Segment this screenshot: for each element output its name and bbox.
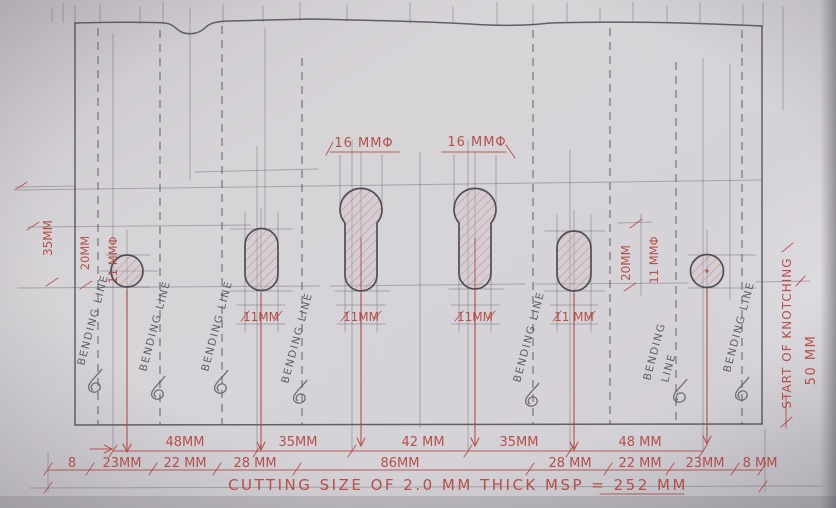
- plate-bottom-edge: [75, 424, 762, 425]
- dim-22mm-left: 22 MM: [163, 456, 206, 471]
- keyhole-left-dia-label: 16 MMΦ: [334, 136, 393, 151]
- center-mark: [705, 269, 708, 272]
- dim-8-left: 8: [68, 456, 76, 471]
- cutting-size-note: CUTTING SIZE OF 2.0 MM THICK MSP = 252 M…: [228, 476, 688, 494]
- slot-right-width-label: 11 MM: [554, 310, 594, 324]
- slot-hole-left: [245, 229, 278, 291]
- dim-35mm-left: 35MM: [279, 435, 318, 450]
- dim-35mm-right: 35MM: [500, 435, 539, 450]
- drawing-canvas: BENDING LINE BENDING LINE BENDING LINE B…: [0, 0, 836, 508]
- dim-28mm-left: 28 MM: [233, 456, 276, 471]
- dim-22mm-right: 22 MM: [618, 456, 661, 471]
- dim-8mm-right: 8 MM: [743, 456, 778, 471]
- dim-48mm-left: 48MM: [166, 435, 205, 450]
- slot-hole-right: [557, 231, 591, 291]
- photo-of-drawing: BENDING LINE BENDING LINE BENDING LINE B…: [0, 0, 836, 508]
- start-of-knotching-label: START OF KNOTCHING: [780, 257, 794, 408]
- right-dim-20mm: 20MM: [619, 245, 633, 281]
- right-dim-11mmdia: 11 MMΦ: [647, 236, 661, 283]
- dim-28mm-right: 28 MM: [548, 456, 591, 471]
- slot-left-width-label: 11MM: [243, 310, 279, 324]
- dim-23mm-right: 23MM: [686, 456, 725, 471]
- keyhole-right-width-label: 11MM: [457, 310, 493, 324]
- dim-86mm: 86MM: [381, 456, 420, 471]
- photo-shading: [0, 0, 836, 508]
- keyhole-right-dia-label: 16 MMΦ: [447, 135, 506, 150]
- dim-48mm-right: 48 MM: [618, 435, 661, 450]
- left-dim-35mm: 35MM: [41, 220, 55, 256]
- dim-23mm-left: 23MM: [103, 456, 142, 471]
- knotch-50mm-label: 50 MM: [804, 335, 819, 386]
- dim-42mm: 42 MM: [401, 435, 444, 450]
- left-dim-11mmdia: 11 MMΦ: [106, 236, 120, 283]
- keyhole-left-width-label: 11MM: [343, 310, 379, 324]
- left-dim-20mm: 20MM: [78, 236, 92, 270]
